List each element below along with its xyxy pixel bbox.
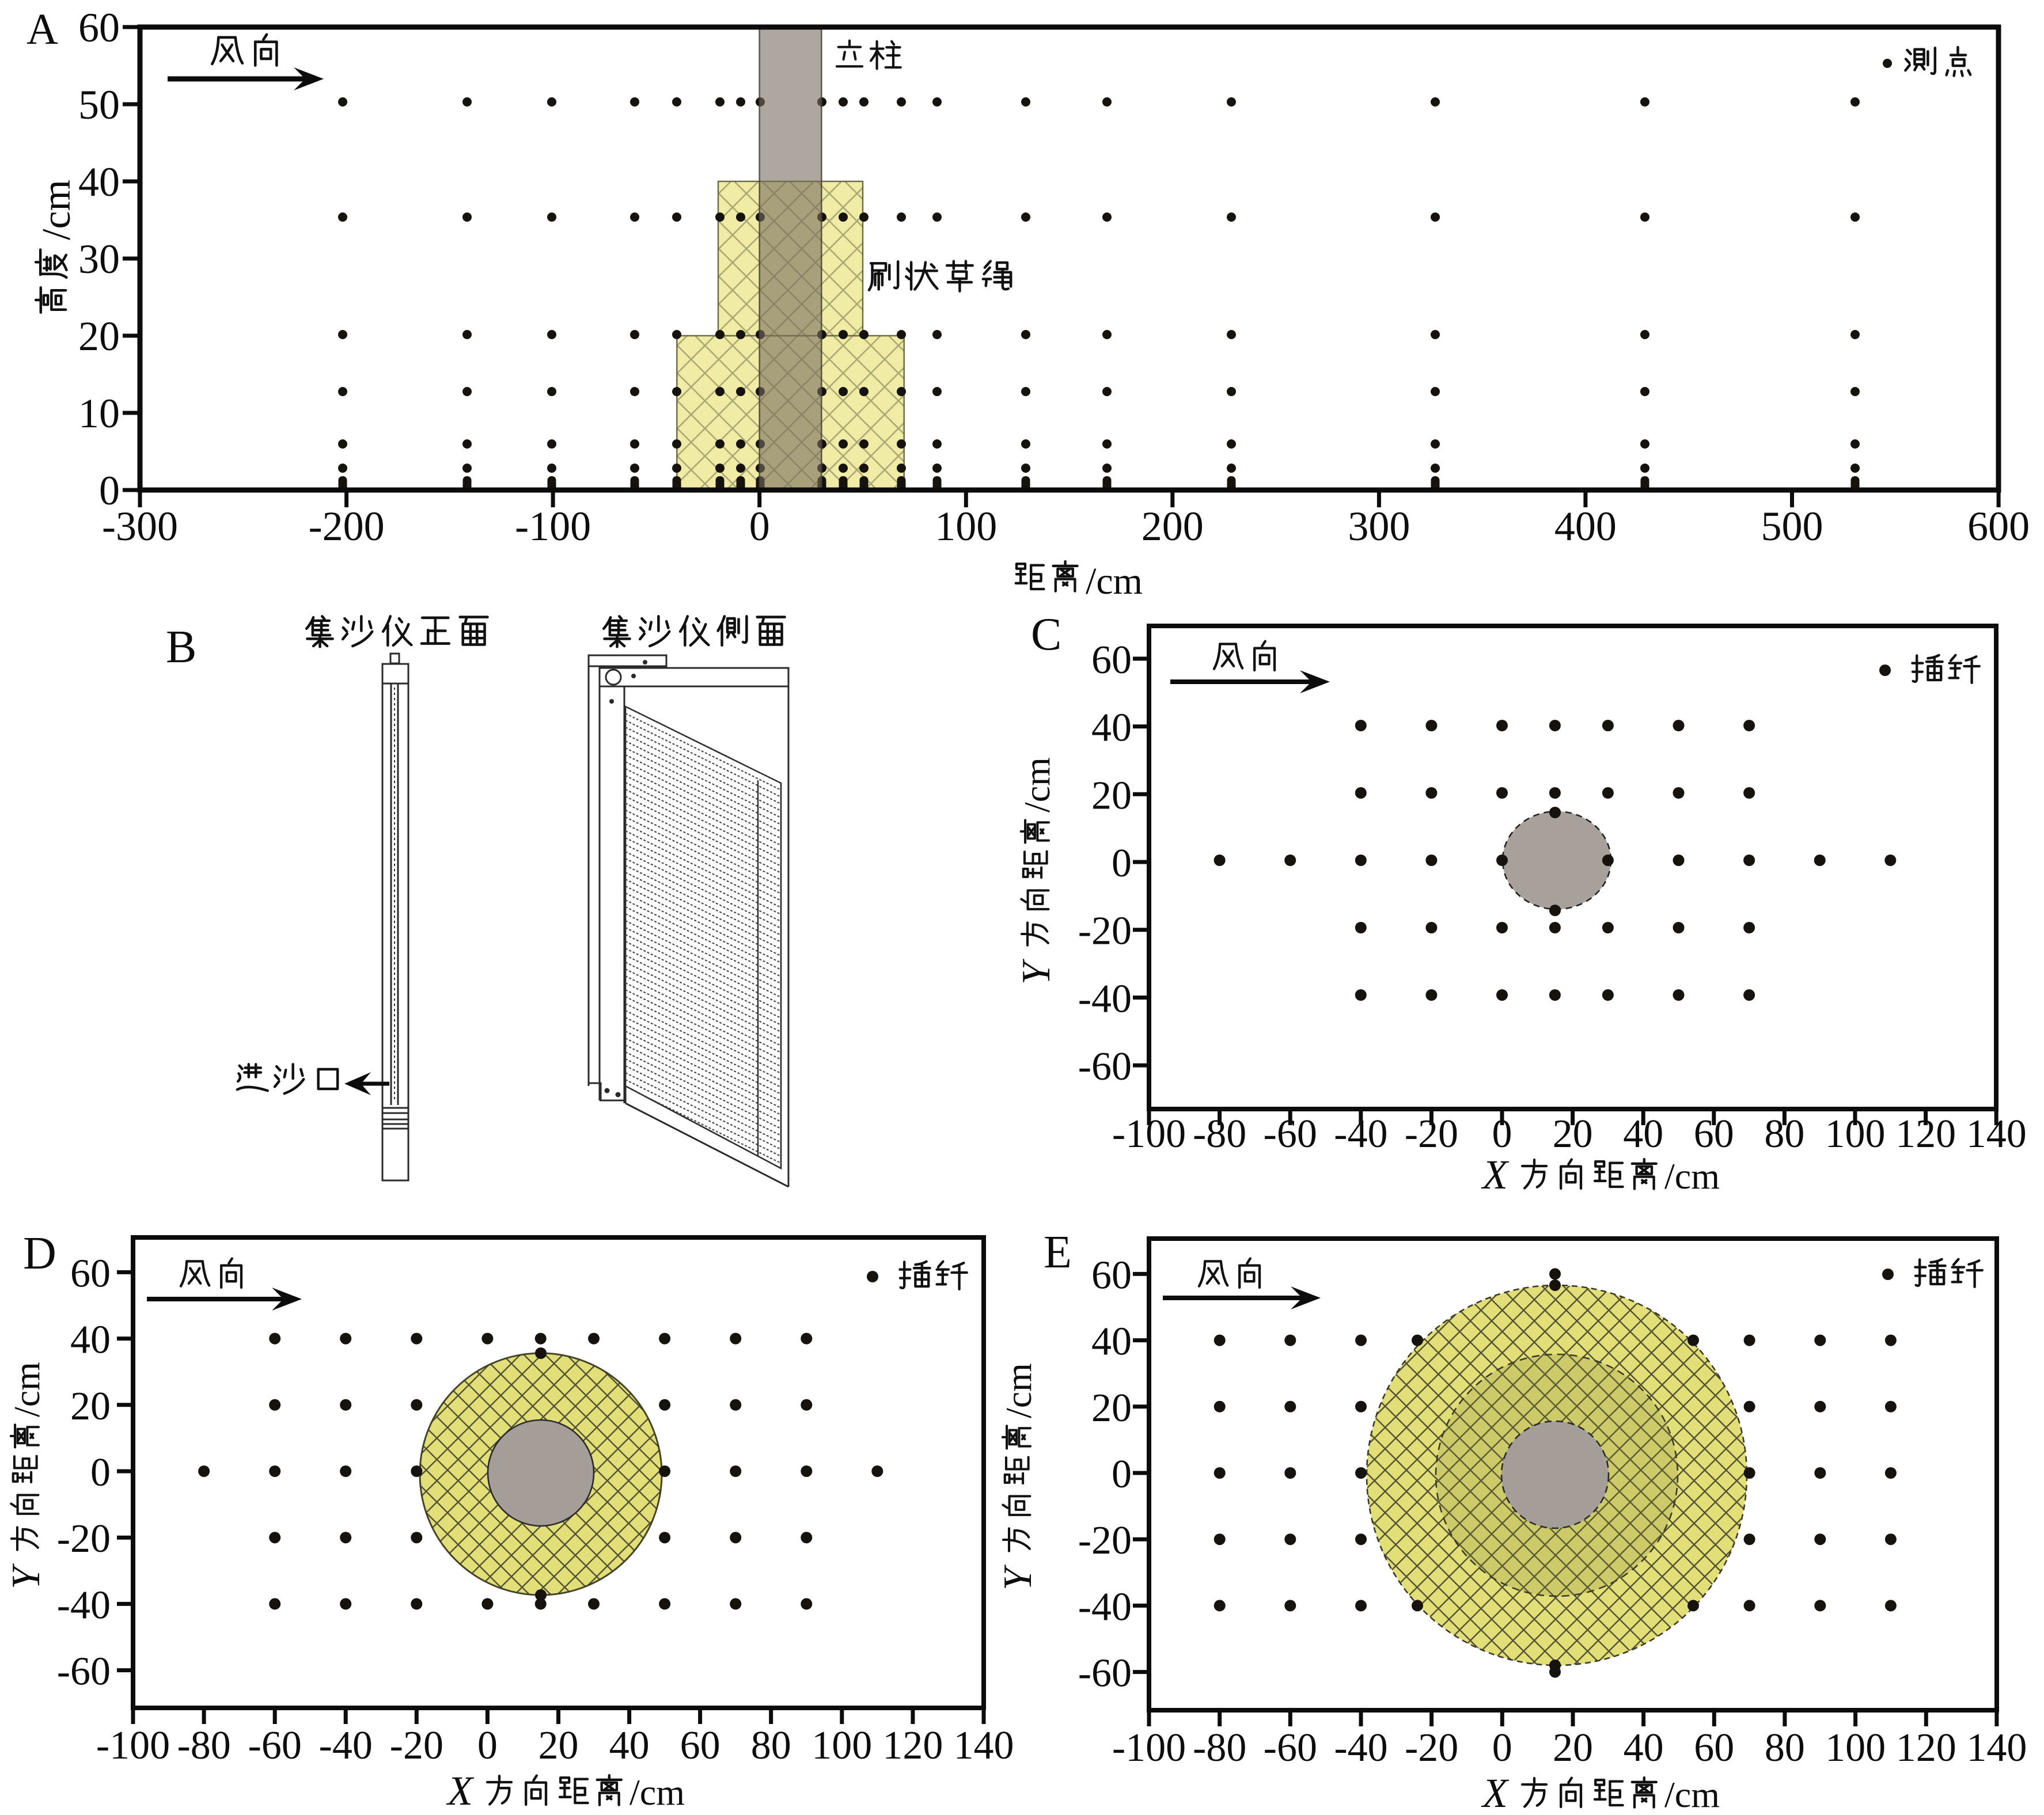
svg-text:120: 120: [1895, 1112, 1956, 1156]
svg-text:10: 10: [78, 390, 120, 436]
svg-text:/cm: /cm: [35, 180, 79, 240]
svg-text:-20: -20: [390, 1723, 443, 1768]
svg-text:-20: -20: [1405, 1726, 1458, 1770]
svg-text:140: 140: [1966, 1726, 2027, 1770]
svg-text:20: 20: [78, 313, 120, 359]
svg-text:40: 40: [78, 159, 120, 205]
svg-text:140: 140: [1966, 1112, 2027, 1156]
svg-text:-40: -40: [57, 1583, 111, 1627]
svg-text:/cm: /cm: [998, 1363, 1039, 1418]
svg-text:-80: -80: [177, 1723, 230, 1768]
svg-text:0: 0: [90, 1451, 111, 1495]
svg-text:/cm: /cm: [1086, 560, 1143, 602]
svg-text:60: 60: [70, 1251, 111, 1296]
svg-text:80: 80: [1764, 1112, 1804, 1156]
svg-text:60: 60: [78, 5, 120, 51]
svg-text:120: 120: [882, 1723, 943, 1768]
svg-text:0: 0: [1112, 1452, 1132, 1497]
svg-text:0: 0: [1112, 841, 1132, 886]
svg-text:-200: -200: [309, 503, 385, 549]
svg-text:600: 600: [1967, 503, 2030, 549]
svg-text:0: 0: [99, 468, 120, 514]
svg-text:D: D: [23, 1228, 56, 1279]
svg-text:500: 500: [1761, 503, 1823, 549]
svg-text:0: 0: [477, 1723, 498, 1768]
svg-text:-40: -40: [1078, 1585, 1132, 1629]
svg-text:-60: -60: [1264, 1726, 1317, 1770]
svg-text:40: 40: [1091, 1320, 1132, 1364]
svg-text:-40: -40: [1334, 1726, 1387, 1770]
svg-text:-100: -100: [1112, 1112, 1186, 1156]
svg-text:20: 20: [1553, 1112, 1593, 1156]
svg-text:X: X: [446, 1768, 475, 1814]
svg-text:50: 50: [78, 82, 120, 128]
svg-text:30: 30: [78, 236, 120, 282]
svg-text:0: 0: [749, 503, 770, 549]
svg-text:X: X: [1481, 1152, 1510, 1198]
svg-text:100: 100: [811, 1723, 872, 1768]
svg-text:C: C: [1031, 609, 1061, 660]
svg-text:-60: -60: [57, 1650, 111, 1694]
svg-text:20: 20: [539, 1723, 579, 1768]
svg-text:300: 300: [1348, 503, 1410, 549]
svg-text:-40: -40: [1334, 1112, 1387, 1156]
svg-text:B: B: [166, 622, 196, 673]
svg-text:/cm: /cm: [629, 1772, 685, 1813]
svg-text:-20: -20: [1405, 1112, 1458, 1156]
svg-text:40: 40: [1091, 706, 1132, 750]
svg-text:60: 60: [1694, 1112, 1734, 1156]
svg-text:/cm: /cm: [1664, 1156, 1720, 1197]
svg-text:/cm: /cm: [1017, 757, 1057, 812]
svg-text:120: 120: [1896, 1726, 1956, 1770]
svg-text:-20: -20: [1078, 1518, 1132, 1563]
svg-text:A: A: [26, 5, 58, 54]
svg-text:20: 20: [1091, 1386, 1132, 1430]
svg-text:-80: -80: [1193, 1726, 1246, 1770]
svg-text:-60: -60: [1264, 1112, 1317, 1156]
svg-text:400: 400: [1554, 503, 1617, 549]
svg-text:-40: -40: [319, 1723, 373, 1768]
svg-text:140: 140: [954, 1723, 1014, 1768]
svg-text:E: E: [1044, 1227, 1072, 1278]
svg-text:60: 60: [680, 1723, 720, 1768]
svg-text:-60: -60: [1078, 1651, 1132, 1696]
svg-text:80: 80: [1765, 1726, 1805, 1770]
svg-text:-40: -40: [1078, 977, 1132, 1021]
svg-text:-20: -20: [57, 1517, 111, 1561]
svg-text:100: 100: [1825, 1726, 1886, 1770]
svg-text:/cm: /cm: [1664, 1774, 1720, 1815]
svg-text:-80: -80: [1193, 1112, 1246, 1156]
svg-text:40: 40: [1623, 1112, 1663, 1156]
svg-text:40: 40: [1624, 1726, 1664, 1770]
svg-text:0: 0: [1492, 1112, 1512, 1156]
svg-text:60: 60: [1091, 1253, 1132, 1297]
svg-text:20: 20: [1553, 1726, 1593, 1770]
svg-text:60: 60: [1091, 638, 1132, 682]
svg-text:-60: -60: [248, 1723, 302, 1768]
svg-text:-100: -100: [96, 1723, 170, 1768]
svg-text:X: X: [1481, 1770, 1510, 1815]
svg-text:-100: -100: [515, 503, 591, 549]
svg-text:20: 20: [1091, 773, 1132, 818]
svg-text:0: 0: [1492, 1726, 1512, 1770]
svg-text:-20: -20: [1078, 909, 1132, 954]
svg-text:/cm: /cm: [6, 1362, 47, 1417]
svg-text:100: 100: [935, 503, 997, 549]
svg-text:60: 60: [1694, 1726, 1734, 1770]
svg-text:80: 80: [751, 1723, 791, 1768]
svg-text:200: 200: [1142, 503, 1204, 549]
svg-text:-100: -100: [1112, 1726, 1186, 1770]
svg-text:40: 40: [609, 1723, 650, 1768]
svg-text:100: 100: [1825, 1112, 1886, 1156]
svg-text:-60: -60: [1078, 1045, 1132, 1089]
svg-text:40: 40: [70, 1318, 111, 1362]
svg-text:20: 20: [70, 1384, 111, 1429]
